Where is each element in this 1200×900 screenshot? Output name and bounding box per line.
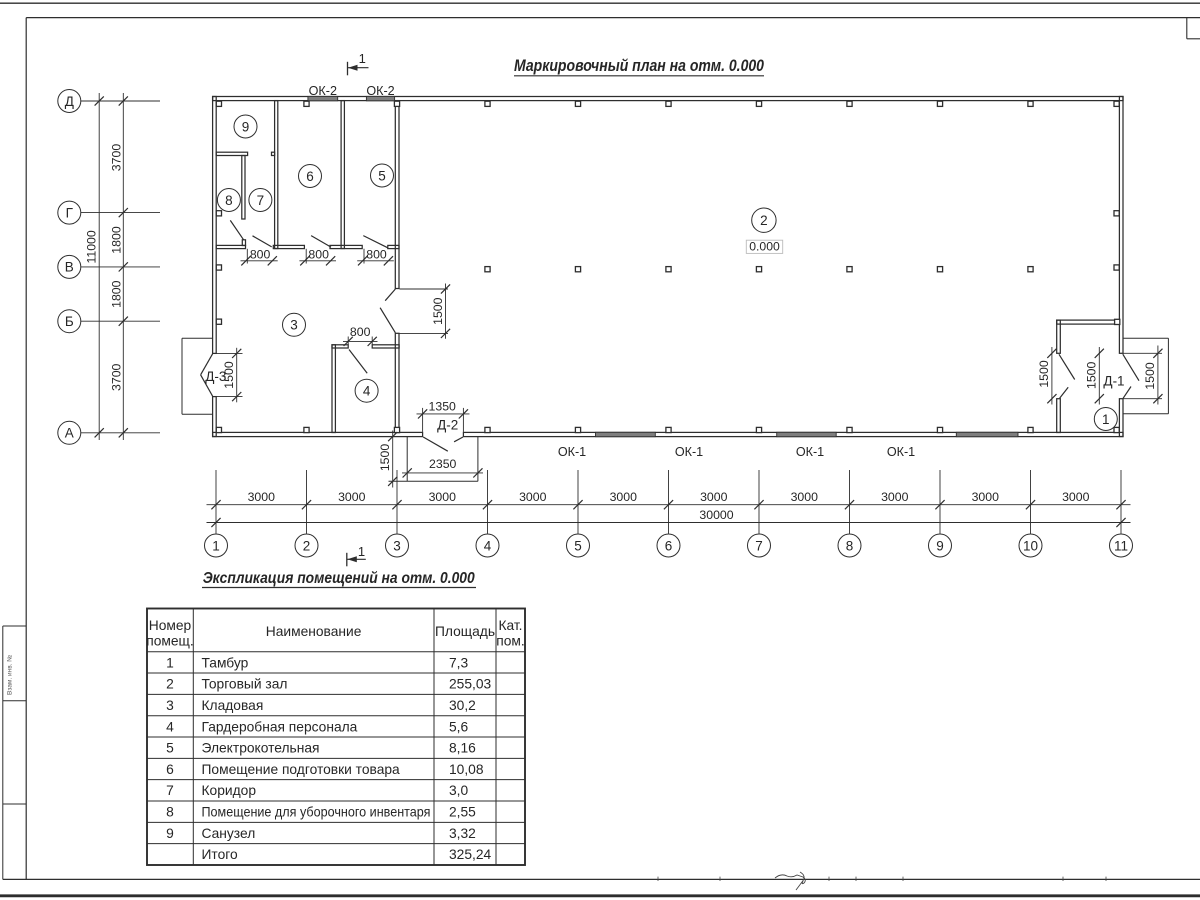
svg-text:2: 2 — [166, 677, 174, 692]
svg-text:3000: 3000 — [248, 490, 276, 504]
svg-text:Тамбур: Тамбур — [202, 655, 249, 670]
svg-text:4: 4 — [484, 538, 492, 553]
svg-text:8: 8 — [166, 805, 174, 820]
svg-text:ОК-1: ОК-1 — [675, 445, 703, 459]
svg-text:11000: 11000 — [85, 230, 99, 263]
svg-text:1500: 1500 — [378, 444, 392, 472]
svg-text:3000: 3000 — [338, 490, 366, 504]
svg-text:3000: 3000 — [881, 490, 909, 504]
svg-text:4: 4 — [166, 719, 174, 734]
svg-text:6: 6 — [665, 538, 673, 553]
svg-text:3000: 3000 — [791, 490, 819, 504]
svg-text:1500: 1500 — [431, 297, 445, 325]
svg-text:1: 1 — [359, 51, 366, 66]
svg-text:5: 5 — [166, 741, 174, 756]
svg-text:Гардеробная персонала: Гардеробная персонала — [202, 719, 358, 734]
svg-text:1: 1 — [212, 538, 220, 553]
svg-text:6: 6 — [166, 762, 174, 777]
svg-text:Д: Д — [65, 94, 74, 109]
svg-text:7: 7 — [755, 538, 763, 553]
svg-text:Помещение подготовки товара: Помещение подготовки товара — [202, 762, 401, 777]
svg-text:Помещение для уборочного инвен: Помещение для уборочного инвентаря — [202, 805, 431, 820]
svg-text:5: 5 — [574, 538, 582, 553]
svg-text:4: 4 — [363, 384, 371, 399]
svg-text:ОК-2: ОК-2 — [309, 84, 337, 98]
svg-text:Санузел: Санузел — [202, 826, 256, 841]
svg-text:2350: 2350 — [429, 457, 457, 471]
svg-text:А: А — [65, 426, 74, 441]
svg-text:Торговый зал: Торговый зал — [202, 677, 288, 692]
svg-text:3000: 3000 — [700, 490, 728, 504]
svg-text:9: 9 — [242, 119, 250, 134]
svg-text:8,16: 8,16 — [449, 741, 476, 756]
svg-text:7: 7 — [257, 193, 265, 208]
svg-text:1350: 1350 — [429, 399, 457, 413]
svg-text:ОК-1: ОК-1 — [887, 445, 915, 459]
svg-text:10,08: 10,08 — [449, 762, 484, 777]
svg-text:1800: 1800 — [110, 226, 124, 254]
svg-text:325,24: 325,24 — [449, 847, 492, 862]
svg-text:3000: 3000 — [519, 490, 547, 504]
svg-text:800: 800 — [250, 248, 271, 262]
svg-text:1: 1 — [358, 544, 365, 559]
svg-text:Взам. инв. №: Взам. инв. № — [7, 655, 14, 695]
svg-text:Площадь: Площадь — [435, 624, 495, 639]
svg-text:ОК-1: ОК-1 — [558, 445, 586, 459]
svg-text:В: В — [65, 260, 74, 275]
svg-text:7,3: 7,3 — [449, 655, 469, 670]
svg-text:3: 3 — [166, 698, 174, 713]
svg-text:3000: 3000 — [610, 490, 638, 504]
svg-text:Б: Б — [65, 314, 74, 329]
svg-text:Д-2: Д-2 — [437, 418, 458, 433]
svg-text:Д-3: Д-3 — [205, 369, 226, 384]
svg-text:3000: 3000 — [972, 490, 1000, 504]
svg-text:Наименование: Наименование — [266, 624, 362, 639]
svg-text:1500: 1500 — [1085, 361, 1099, 389]
svg-text:Номер: Номер — [149, 618, 192, 633]
svg-text:11: 11 — [1114, 538, 1128, 553]
svg-text:Г: Г — [66, 205, 74, 220]
svg-text:3: 3 — [290, 318, 298, 333]
svg-text:ОК-2: ОК-2 — [366, 84, 394, 98]
svg-text:Электрокотельная: Электрокотельная — [202, 741, 320, 756]
svg-text:Кат.: Кат. — [498, 618, 522, 633]
svg-text:30000: 30000 — [699, 508, 733, 522]
svg-text:255,03: 255,03 — [449, 677, 492, 692]
svg-text:0.000: 0.000 — [749, 240, 780, 254]
svg-text:2: 2 — [303, 538, 311, 553]
svg-text:Кладовая: Кладовая — [202, 698, 264, 713]
svg-text:3700: 3700 — [110, 363, 124, 391]
svg-text:Д-1: Д-1 — [1103, 374, 1124, 389]
svg-text:7: 7 — [166, 783, 174, 798]
svg-text:1500: 1500 — [1143, 362, 1157, 390]
svg-text:3000: 3000 — [1062, 490, 1090, 504]
svg-text:2,55: 2,55 — [449, 805, 476, 820]
svg-text:1800: 1800 — [110, 280, 124, 308]
svg-text:2: 2 — [760, 213, 768, 228]
svg-text:помещ.: помещ. — [146, 634, 194, 649]
svg-text:8: 8 — [846, 538, 854, 553]
svg-text:5,6: 5,6 — [449, 719, 469, 734]
svg-text:3: 3 — [393, 538, 401, 553]
svg-text:пом.: пом. — [496, 634, 524, 649]
svg-text:30,2: 30,2 — [449, 698, 476, 713]
svg-text:3000: 3000 — [429, 490, 457, 504]
svg-text:1500: 1500 — [1037, 360, 1051, 388]
svg-text:8: 8 — [225, 193, 233, 208]
svg-text:9: 9 — [936, 538, 944, 553]
svg-text:5: 5 — [378, 168, 386, 183]
svg-text:800: 800 — [350, 325, 371, 339]
svg-text:ОК-1: ОК-1 — [796, 445, 824, 459]
svg-text:3,32: 3,32 — [449, 826, 476, 841]
svg-text:Коридор: Коридор — [202, 783, 257, 798]
svg-text:3,0: 3,0 — [449, 783, 469, 798]
svg-text:800: 800 — [366, 248, 387, 262]
svg-text:6: 6 — [306, 169, 314, 184]
svg-text:9: 9 — [166, 826, 174, 841]
svg-text:1: 1 — [1102, 412, 1110, 427]
svg-text:1: 1 — [166, 655, 174, 670]
svg-text:3700: 3700 — [110, 144, 124, 172]
svg-text:Экспликация помещений на отм.: Экспликация помещений на отм. 0.000 — [203, 570, 475, 587]
svg-text:Маркировочный план на отм. 0.0: Маркировочный план на отм. 0.000 — [514, 57, 764, 75]
svg-text:10: 10 — [1023, 538, 1038, 553]
svg-text:Итого: Итого — [202, 847, 238, 862]
svg-text:800: 800 — [308, 248, 329, 262]
